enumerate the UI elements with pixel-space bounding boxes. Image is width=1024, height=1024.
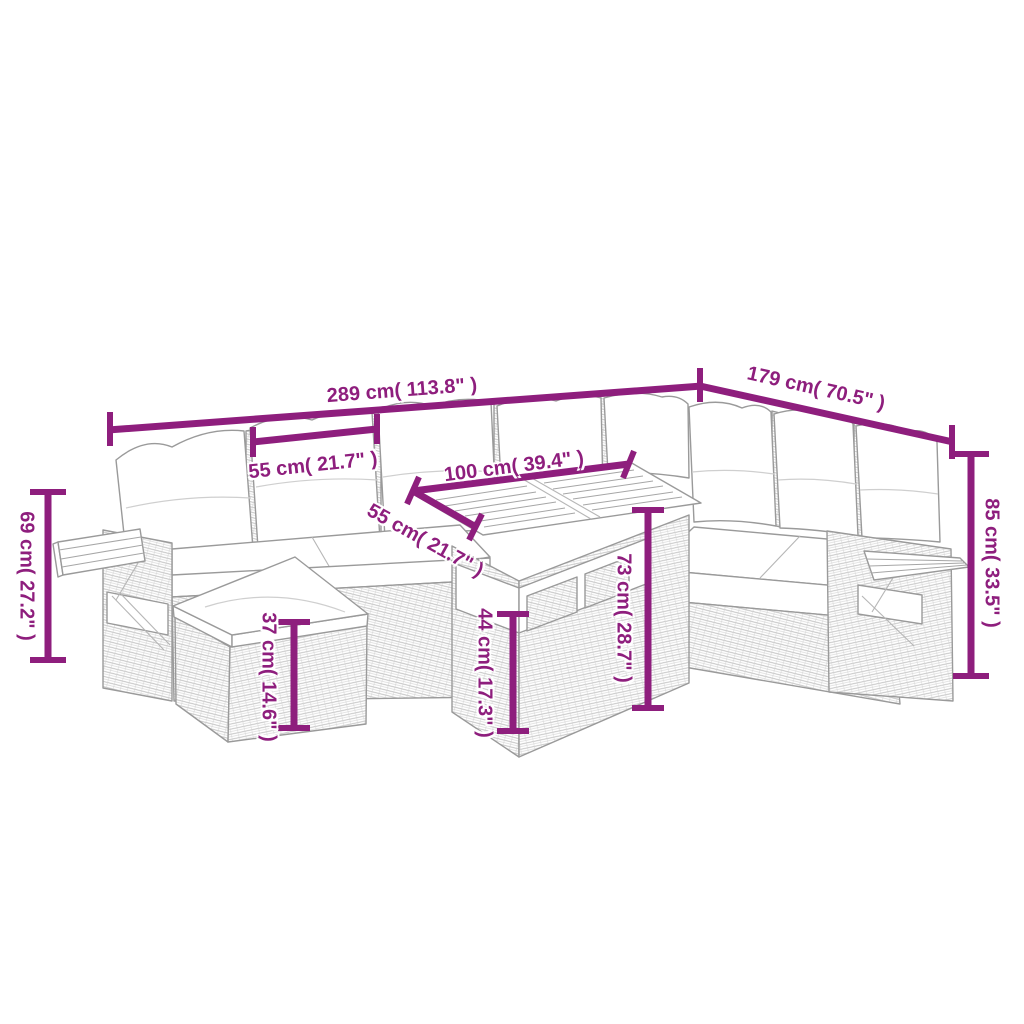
back-cushion [689, 402, 776, 526]
dimension-diagram: 289 cm( 113.8" ) 179 cm( 70.5" ) 55 cm( … [0, 0, 1024, 1024]
dim-label-ottoman-height: 37 cm( 14.6" ) [257, 612, 280, 742]
right-sofa [649, 527, 969, 704]
center-table [413, 462, 701, 757]
table-body-front [519, 515, 689, 757]
dim-label-table-height: 73 cm( 28.7" ) [612, 553, 635, 683]
left-armrest [53, 529, 172, 701]
back-cushion [856, 424, 940, 542]
back-cushion [774, 410, 858, 536]
dim-label-table-base-height: 44 cm( 17.3" ) [473, 608, 496, 738]
dim-label-total-height: 85 cm( 33.5" ) [980, 498, 1003, 628]
furniture-sketch [0, 0, 1024, 1024]
dim-label-armrest-height: 69 cm( 27.2" ) [15, 511, 38, 641]
